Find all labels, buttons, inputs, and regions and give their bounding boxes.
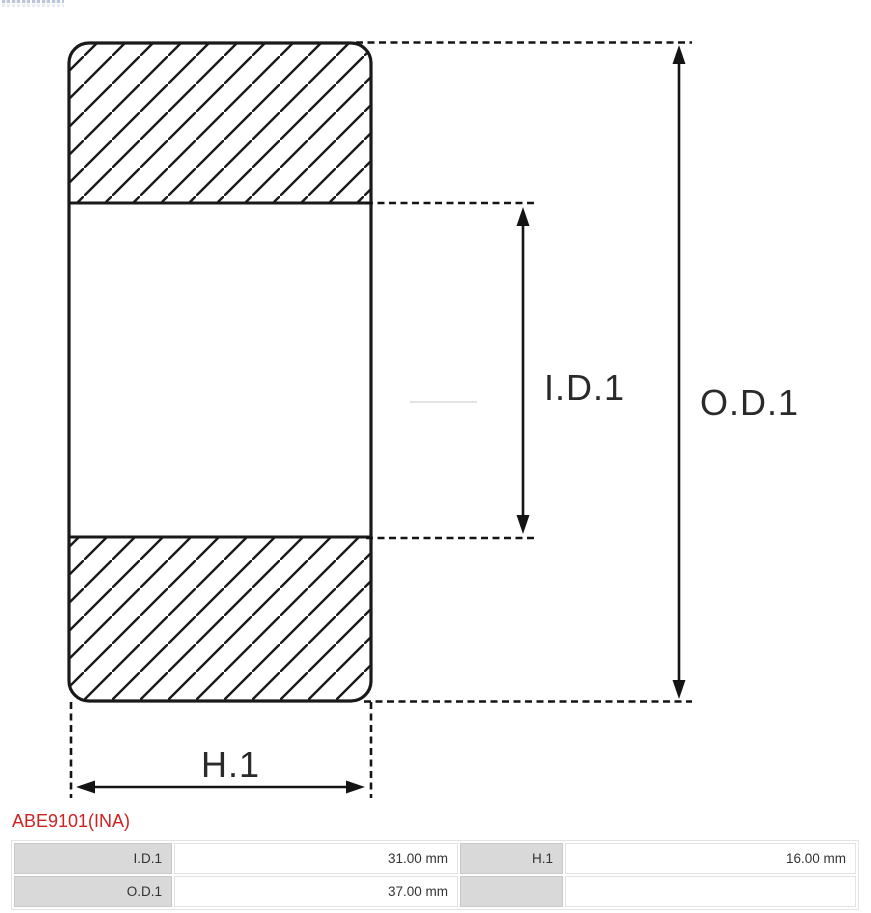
spec-value-cell bbox=[565, 876, 856, 907]
spec-table-row: O.D.1 37.00 mm bbox=[14, 876, 856, 907]
spec-value-cell: 16.00 mm bbox=[565, 843, 856, 874]
id-dimension-label: I.D.1 bbox=[544, 367, 625, 408]
spec-value-cell: 37.00 mm bbox=[174, 876, 458, 907]
bearing-top-hatch bbox=[69, 43, 371, 204]
spec-label-cell: I.D.1 bbox=[14, 843, 172, 874]
bearing-hatch-areas bbox=[69, 43, 371, 702]
spec-label-cell: H.1 bbox=[460, 843, 563, 874]
spec-table: I.D.1 31.00 mm H.1 16.00 mm O.D.1 37.00 … bbox=[11, 840, 859, 910]
bearing-bottom-hatch bbox=[69, 536, 371, 702]
spec-label-cell: O.D.1 bbox=[14, 876, 172, 907]
h-dimension-label: H.1 bbox=[201, 744, 260, 785]
spec-value-cell: 31.00 mm bbox=[174, 843, 458, 874]
od-dimension-arrow bbox=[673, 45, 686, 699]
spec-label-cell bbox=[460, 876, 563, 907]
od-dimension-label: O.D.1 bbox=[700, 382, 799, 423]
spec-table-row: I.D.1 31.00 mm H.1 16.00 mm bbox=[14, 843, 856, 874]
part-number: ABE9101(INA) bbox=[12, 811, 130, 832]
page: I.D.1 O.D.1 H.1 ABE9101(INA) I.D.1 31.00… bbox=[0, 0, 871, 913]
bearing-diagram: I.D.1 O.D.1 H.1 bbox=[0, 0, 871, 808]
id-dimension-arrow bbox=[517, 207, 530, 534]
